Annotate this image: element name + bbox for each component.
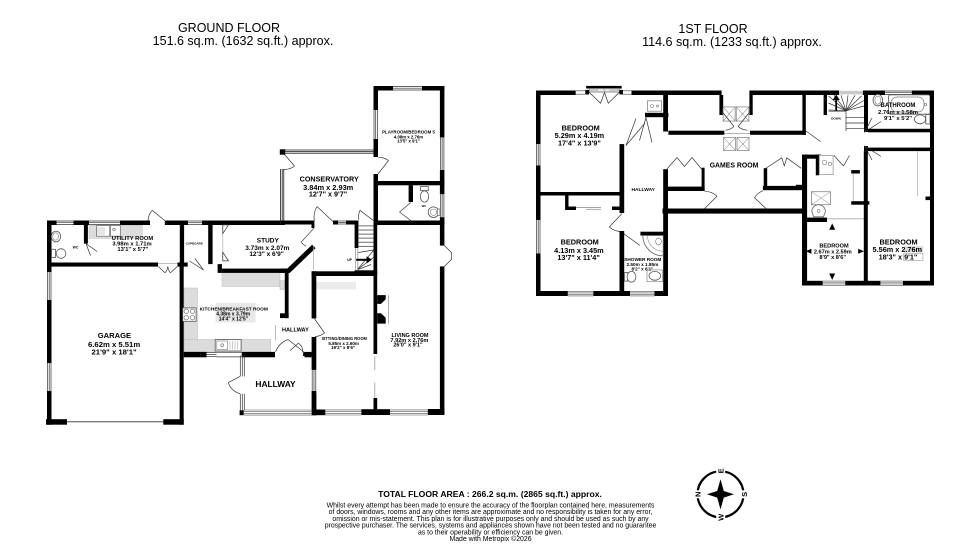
svg-text:Made with Metropix ©2026: Made with Metropix ©2026 bbox=[449, 535, 531, 543]
svg-text:HALLWAY: HALLWAY bbox=[255, 379, 296, 389]
svg-text:BATHROOM: BATHROOM bbox=[881, 103, 916, 109]
svg-text:W: W bbox=[717, 513, 726, 521]
svg-text:CUPBOARD: CUPBOARD bbox=[186, 241, 204, 245]
svg-text:UP: UP bbox=[347, 258, 352, 262]
svg-text:E: E bbox=[717, 468, 726, 473]
svg-text:WC: WC bbox=[422, 204, 427, 208]
svg-text:12'3" x 6'9": 12'3" x 6'9" bbox=[249, 251, 284, 258]
svg-text:8'9" x 8'6": 8'9" x 8'6" bbox=[819, 255, 846, 261]
svg-text:114.6 sq.m. (1233 sq.ft.) appr: 114.6 sq.m. (1233 sq.ft.) approx. bbox=[642, 35, 822, 49]
svg-text:HALLWAY: HALLWAY bbox=[631, 187, 655, 193]
svg-text:WC: WC bbox=[73, 246, 79, 250]
svg-text:2.76m x 1.58m: 2.76m x 1.58m bbox=[878, 110, 918, 116]
svg-text:151.6 sq.m. (1632 sq.ft.) appr: 151.6 sq.m. (1632 sq.ft.) approx. bbox=[153, 34, 334, 48]
svg-text:9'1" x 5'2": 9'1" x 5'2" bbox=[884, 116, 912, 122]
svg-text:14'4" x 12'5": 14'4" x 12'5" bbox=[219, 316, 249, 322]
svg-text:8'2" x 6'1": 8'2" x 6'1" bbox=[631, 267, 653, 272]
svg-text:21'9" x 18'1": 21'9" x 18'1" bbox=[92, 348, 138, 357]
svg-text:18'3" x 9'1": 18'3" x 9'1" bbox=[879, 252, 918, 261]
svg-text:DOWN: DOWN bbox=[831, 117, 841, 121]
svg-text:13'1" x 5'7": 13'1" x 5'7" bbox=[117, 247, 148, 253]
svg-text:12'7" x 9'7": 12'7" x 9'7" bbox=[309, 189, 347, 198]
svg-text:GROUND FLOOR: GROUND FLOOR bbox=[178, 21, 280, 35]
svg-text:19'2" x 8'6": 19'2" x 8'6" bbox=[331, 345, 355, 350]
svg-text:TOTAL FLOOR AREA : 266.2 sq.m.: TOTAL FLOOR AREA : 266.2 sq.m. (2865 sq.… bbox=[378, 489, 602, 499]
svg-text:13'7" x 11'4": 13'7" x 11'4" bbox=[557, 253, 599, 262]
svg-text:GAMES ROOM: GAMES ROOM bbox=[710, 163, 759, 170]
svg-text:BEDROOM: BEDROOM bbox=[819, 243, 849, 249]
svg-text:S: S bbox=[740, 492, 749, 497]
svg-text:HALLWAY: HALLWAY bbox=[282, 328, 309, 334]
svg-text:13'5" x 9'1": 13'5" x 9'1" bbox=[397, 139, 420, 144]
svg-text:1ST FLOOR: 1ST FLOOR bbox=[678, 22, 747, 36]
svg-text:26'0" x 9'1": 26'0" x 9'1" bbox=[393, 343, 423, 349]
svg-text:N: N bbox=[694, 492, 703, 497]
svg-text:17'4" x 13'9": 17'4" x 13'9" bbox=[558, 139, 601, 148]
svg-text:STUDY: STUDY bbox=[257, 237, 280, 244]
